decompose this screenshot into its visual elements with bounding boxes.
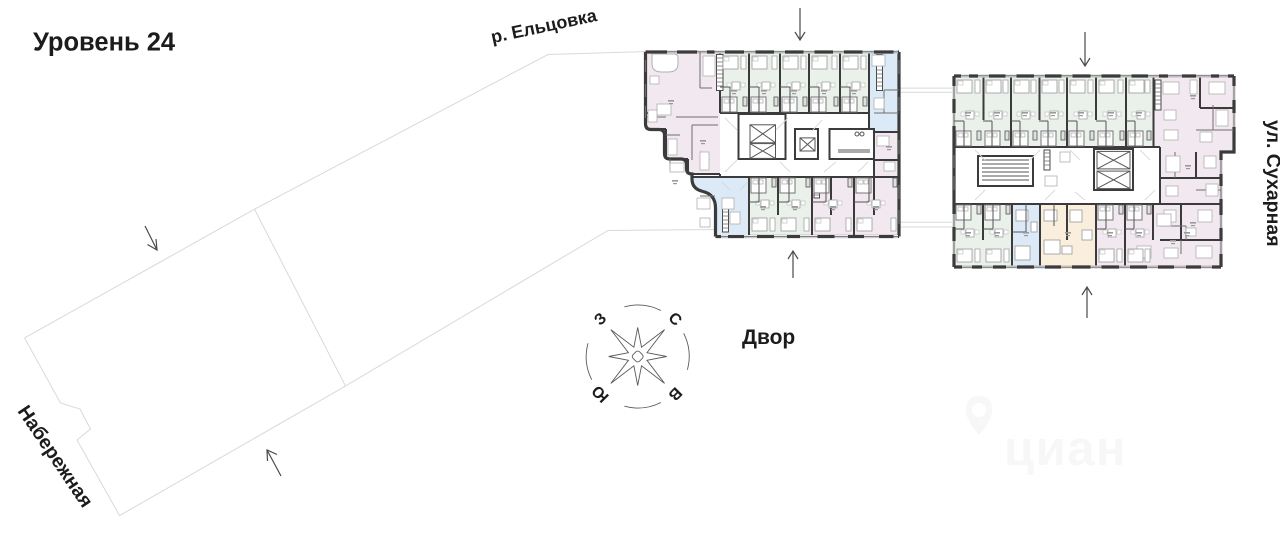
svg-text:Двор: Двор bbox=[742, 326, 795, 349]
svg-text:р. Ельцовка: р. Ельцовка bbox=[489, 5, 599, 47]
svg-text:В: В bbox=[665, 383, 685, 403]
svg-text:Ю: Ю bbox=[589, 382, 613, 406]
svg-text:С: С bbox=[665, 309, 686, 330]
svg-text:З: З bbox=[591, 310, 610, 329]
svg-text:ул. Сухарная: ул. Сухарная bbox=[1262, 120, 1280, 247]
svg-text:Уровень 24: Уровень 24 bbox=[33, 29, 176, 57]
svg-text:циан: циан bbox=[1004, 422, 1127, 476]
